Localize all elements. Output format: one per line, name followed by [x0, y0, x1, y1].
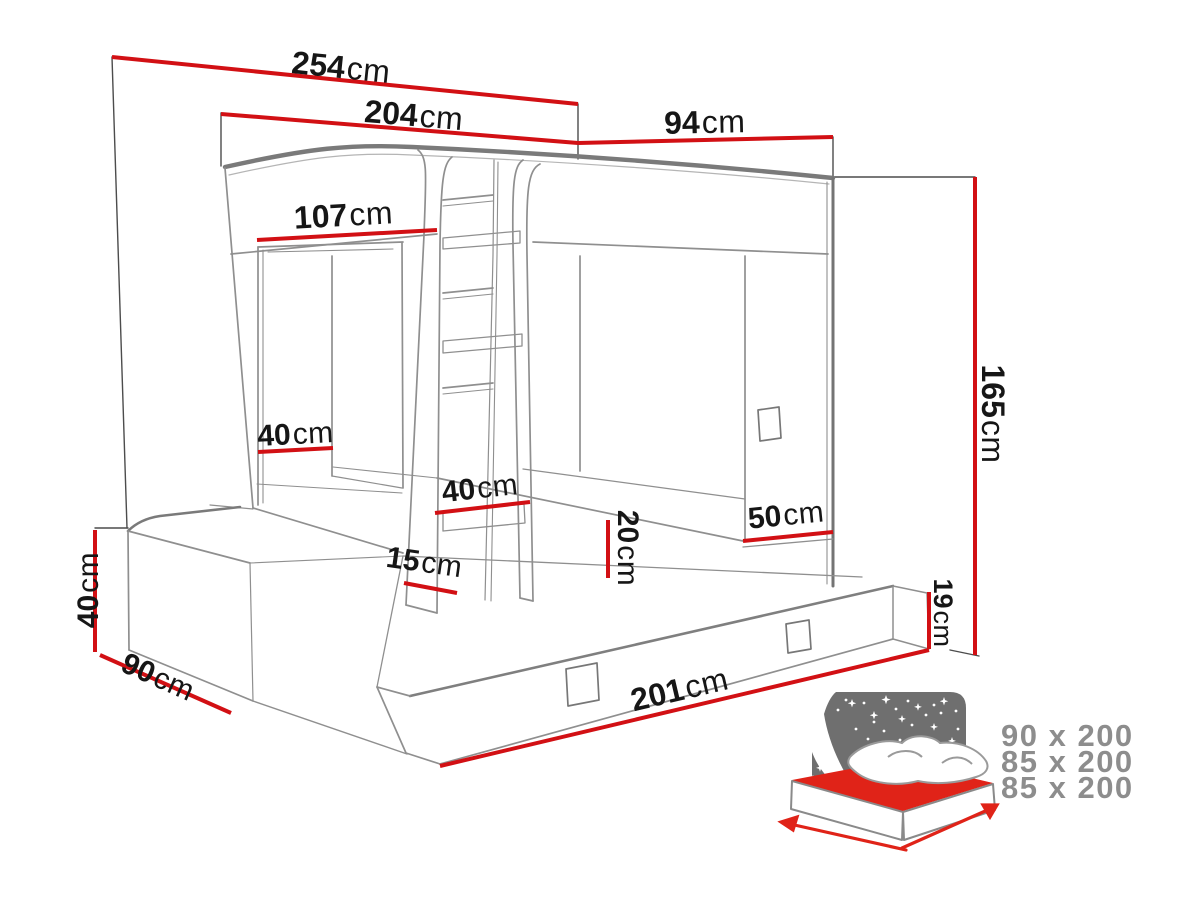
dim-ladder-gap-label: 15cm: [384, 541, 464, 584]
drawer-handle-left: [566, 663, 599, 706]
canopy-bottom-right: [533, 242, 828, 254]
base-bottom-continue: [253, 701, 407, 754]
canopy-top-edge: [225, 146, 833, 178]
niche-top-edge: [258, 242, 403, 247]
ladder-shelf-1: [443, 231, 520, 249]
base-top-curve: [128, 507, 240, 531]
bed-structure-drawing: [128, 146, 929, 764]
panel-handle: [758, 407, 781, 441]
ladder-rung-3b: [443, 389, 493, 394]
extension-lines: [95, 57, 979, 656]
dim-drawer-height-label: 19cm: [928, 578, 958, 647]
dim-panel-height-label: 50cm: [746, 495, 825, 535]
mattress-size-row-3: 85 x 200: [1001, 770, 1134, 805]
ladder-shelf-2: [443, 334, 522, 353]
drawer-left-end-edge: [377, 687, 406, 753]
niche-front-floor: [257, 484, 402, 493]
left-panel-edge: [225, 168, 253, 508]
dim-upper-width-label: 204cm: [363, 93, 465, 137]
dim-base-height-label: 40cm: [72, 552, 105, 628]
dimension-lines: [95, 57, 975, 766]
dim-opening-width-label: 107cm: [293, 194, 394, 235]
ladder-rail-left-inner: [437, 157, 452, 613]
niche-top-inner: [268, 249, 393, 252]
ladder-foot-right: [520, 598, 533, 601]
base-top-edge-left: [253, 508, 403, 553]
ext-total-width-left: [112, 57, 127, 528]
dimension-labels: 254cm 204cm 94cm 107cm 40cm 40cm 15cm 20…: [72, 44, 1011, 718]
bunk-bed-dimension-diagram: 254cm 204cm 94cm 107cm 40cm 40cm 15cm 20…: [0, 0, 1200, 899]
base-left-front-edge: [128, 531, 129, 650]
bed-size-icon: [781, 692, 997, 850]
dim-right-width-label: 94cm: [664, 103, 746, 141]
ladder-rung-2: [443, 288, 493, 293]
mattress-sizes: 90 x 200 85 x 200 85 x 200: [1001, 718, 1134, 805]
ladder-rung-1b: [443, 201, 493, 206]
mattress-back-edge: [523, 469, 745, 499]
dim-mattress-step-label: 20cm: [611, 510, 644, 586]
ladder-rail-mid-2: [491, 162, 498, 601]
ladder-rail-right-inner: [513, 160, 523, 598]
dim-base-depth-label: 90cm: [116, 647, 199, 708]
dim-ladder-gap-line: [404, 583, 457, 593]
diagram-page: 254cm 204cm 94cm 107cm 40cm 40cm 15cm 20…: [0, 0, 1200, 899]
drawer-handle-right: [786, 620, 811, 653]
ladder-rung-3: [443, 383, 493, 388]
dim-total-height-label: 165cm: [975, 364, 1011, 463]
dim-niche-depth-label: 40cm: [257, 416, 335, 453]
niche-floor-edge: [332, 476, 402, 488]
drawer-left-end-bottom: [406, 753, 440, 764]
base-front-top: [250, 556, 403, 563]
niche-right-jamb: [402, 243, 403, 488]
base-right-edge: [250, 563, 253, 701]
ladder-rail-left-outer: [406, 150, 426, 605]
ladder-rung-1: [443, 195, 493, 200]
drawer-right-end: [893, 586, 929, 649]
ladder-rail-right-outer: [527, 164, 540, 601]
dim-total-width-label: 254cm: [290, 44, 392, 90]
ladder-foot-left: [406, 605, 437, 613]
mattress-left-link: [333, 467, 437, 478]
drawer-left-end-top: [377, 687, 410, 696]
base-left-top-edge: [128, 531, 250, 563]
ladder-rung-2b: [443, 294, 493, 299]
